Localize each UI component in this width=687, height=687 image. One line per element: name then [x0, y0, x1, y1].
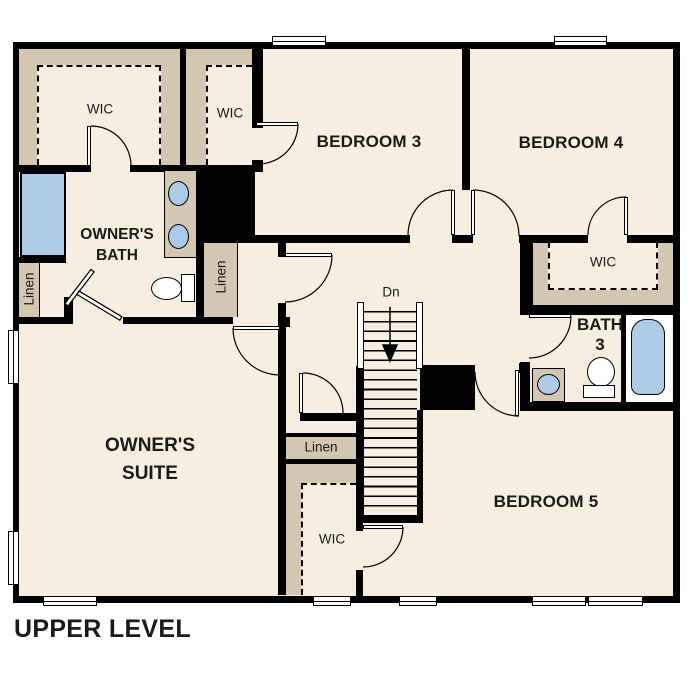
window: [43, 596, 97, 606]
toilet-tank: [181, 274, 195, 302]
closet-label-linen-left: Linen: [22, 272, 37, 305]
wall: [196, 243, 204, 318]
room-label-upper-wic: WIC: [217, 106, 243, 121]
door-leaf: [451, 190, 455, 235]
shower-fixture: [20, 172, 66, 257]
toilet-fixture: [151, 277, 182, 300]
wall: [13, 165, 91, 172]
wall: [417, 410, 423, 523]
window: [554, 36, 607, 46]
closet-label-linen-mid: Linen: [214, 260, 229, 293]
wall: [356, 515, 423, 523]
stairs-direction-label: Dn: [382, 285, 399, 300]
floor-plan: WIC WIC BEDROOM 3 BEDROOM 4 BEDROOM 5 WI…: [0, 0, 687, 687]
door-leaf: [299, 373, 303, 413]
wall: [123, 317, 233, 324]
door-leaf: [529, 314, 571, 318]
wall: [520, 362, 530, 407]
room-label-owners-bath: OWNER'S BATH: [80, 224, 153, 266]
window: [588, 596, 643, 606]
room-label-right-wic: WIC: [590, 255, 616, 270]
window: [8, 531, 19, 585]
wall: [356, 570, 363, 596]
wall: [180, 47, 186, 169]
owners-bath-line2: BATH: [80, 245, 153, 266]
stair-rail: [357, 302, 364, 369]
wall: [520, 235, 533, 315]
bath3-line1: BATH: [577, 315, 623, 335]
room-label-bath-3: BATH 3: [577, 315, 623, 355]
wall: [286, 433, 356, 437]
room-label-lower-wic: WIC: [319, 532, 345, 547]
wall-mass: [420, 365, 475, 410]
wall: [18, 257, 66, 263]
window: [313, 596, 351, 606]
wall: [627, 235, 673, 243]
room-label-bedroom-5: BEDROOM 5: [494, 492, 599, 512]
door-leaf: [87, 126, 91, 166]
door-leaf: [233, 326, 280, 330]
owners-suite-line1: OWNER'S: [105, 432, 195, 460]
level-title: UPPER LEVEL: [14, 615, 191, 644]
stair-rail: [416, 302, 423, 369]
wall: [520, 402, 680, 411]
wall: [356, 523, 363, 531]
wall: [673, 42, 680, 603]
wall: [286, 459, 356, 464]
door-leaf: [285, 253, 332, 257]
wall: [252, 47, 263, 128]
door-leaf: [471, 190, 475, 235]
door-leaf: [624, 197, 628, 235]
room-label-bedroom-4: BEDROOM 4: [519, 133, 624, 153]
sink-fixture: [168, 181, 189, 206]
sink-fixture: [168, 224, 189, 249]
room-label-owners-wic: WIC: [87, 102, 113, 117]
wall: [462, 42, 470, 190]
bath3-line2: 3: [577, 335, 623, 355]
wall: [356, 366, 364, 523]
door-leaf: [256, 122, 298, 126]
wall: [13, 317, 73, 324]
room-label-owners-suite: OWNER'S SUITE: [105, 432, 195, 488]
wall: [278, 303, 286, 595]
window: [272, 36, 326, 46]
wall: [64, 297, 73, 317]
bathtub-fixture: [631, 319, 665, 395]
door-leaf: [515, 370, 519, 416]
window: [532, 596, 586, 606]
sink-fixture: [537, 374, 560, 395]
window: [399, 596, 437, 606]
closet-label-linen-center: Linen: [304, 440, 337, 455]
wall-mass: [197, 167, 255, 243]
door-leaf: [363, 525, 403, 529]
owners-suite-line2: SUITE: [105, 460, 195, 488]
toilet-tank: [583, 385, 615, 398]
stairs: [364, 303, 417, 515]
owners-bath-line1: OWNER'S: [80, 224, 153, 245]
wall: [452, 235, 473, 243]
toilet-fixture: [587, 357, 615, 387]
wall: [300, 413, 358, 421]
window: [8, 330, 19, 384]
room-label-bedroom-3: BEDROOM 3: [317, 132, 422, 152]
